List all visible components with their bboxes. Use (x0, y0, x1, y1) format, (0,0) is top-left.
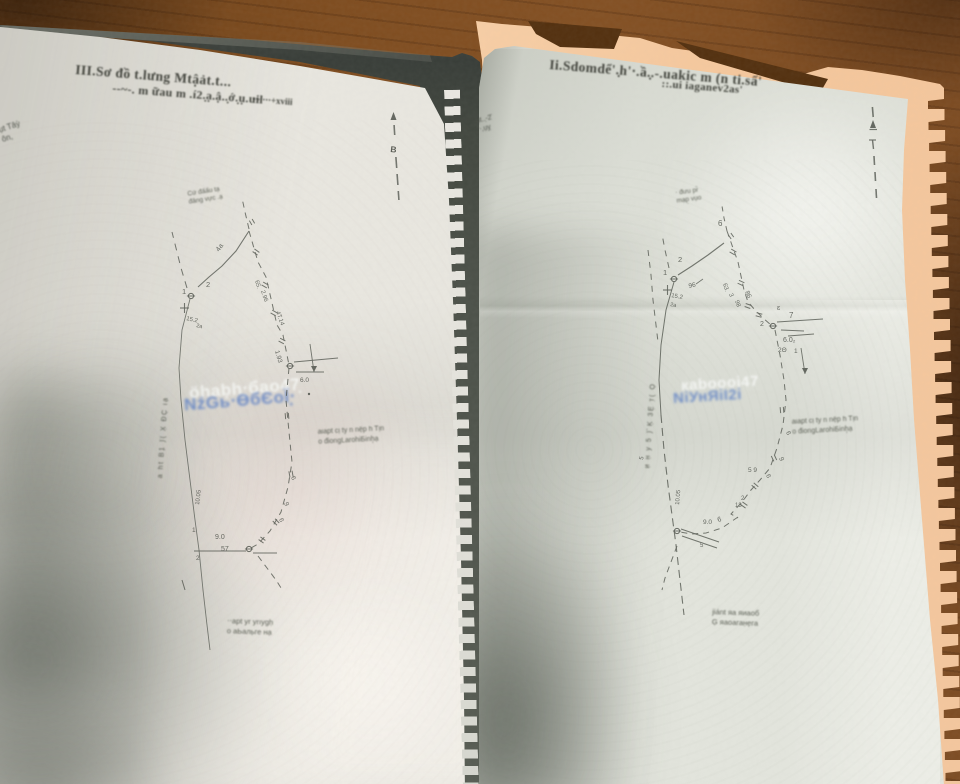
svg-text:9.0: 9.0 (215, 534, 225, 541)
svg-text:6.0: 6.0 (300, 377, 309, 384)
svg-text:10.05: 10.05 (195, 489, 203, 505)
svg-text:2: 2 (196, 555, 200, 562)
svg-text:2.96: 2.96 (259, 290, 269, 304)
svg-text:15.2: 15.2 (671, 293, 684, 301)
svg-text:B: B (390, 144, 397, 155)
svg-text:1: 1 (192, 527, 196, 534)
svg-text:6: 6 (764, 473, 772, 479)
svg-text:6: 6 (717, 516, 723, 524)
svg-text:5: 5 (639, 455, 646, 460)
svg-text:1.93: 1.93 (273, 350, 283, 364)
svg-text:7: 7 (789, 311, 794, 320)
svg-text:1: 1 (794, 348, 798, 355)
svg-text:2: 2 (206, 280, 210, 289)
svg-text:1: 1 (182, 287, 186, 296)
svg-text:9.0: 9.0 (703, 519, 712, 526)
svg-text:3: 3 (727, 293, 734, 299)
svg-text:5: 5 (700, 543, 704, 549)
svg-text:6: 6 (289, 475, 297, 481)
svg-text:65.: 65. (253, 280, 261, 290)
svg-text:98: 98 (733, 300, 741, 309)
svg-text:6: 6 (277, 517, 285, 523)
svg-text:6: 6 (718, 219, 723, 228)
svg-text:10.05: 10.05 (675, 489, 682, 505)
svg-text:63.: 63. (721, 283, 729, 293)
svg-text:ɛ: ɛ (777, 305, 781, 312)
svg-text:9: 9 (282, 501, 290, 507)
svg-text:4a: 4a (215, 243, 225, 253)
svg-text:57: 57 (221, 546, 229, 553)
svg-text:13: 13 (735, 503, 742, 509)
svg-text:86: 86 (743, 290, 753, 300)
svg-text:6.0₂: 6.0₂ (783, 337, 796, 344)
svg-text:2a: 2a (196, 323, 204, 330)
svg-text:96: 96 (688, 282, 697, 290)
svg-text:5 9: 5 9 (748, 467, 757, 474)
svg-text:6: 6 (784, 430, 792, 436)
svg-text:2: 2 (678, 255, 682, 264)
svg-text:2a: 2a (670, 302, 678, 309)
svg-text:1: 1 (663, 268, 667, 277)
svg-text:2: 2 (760, 321, 764, 328)
svg-text:9: 9 (777, 456, 785, 462)
